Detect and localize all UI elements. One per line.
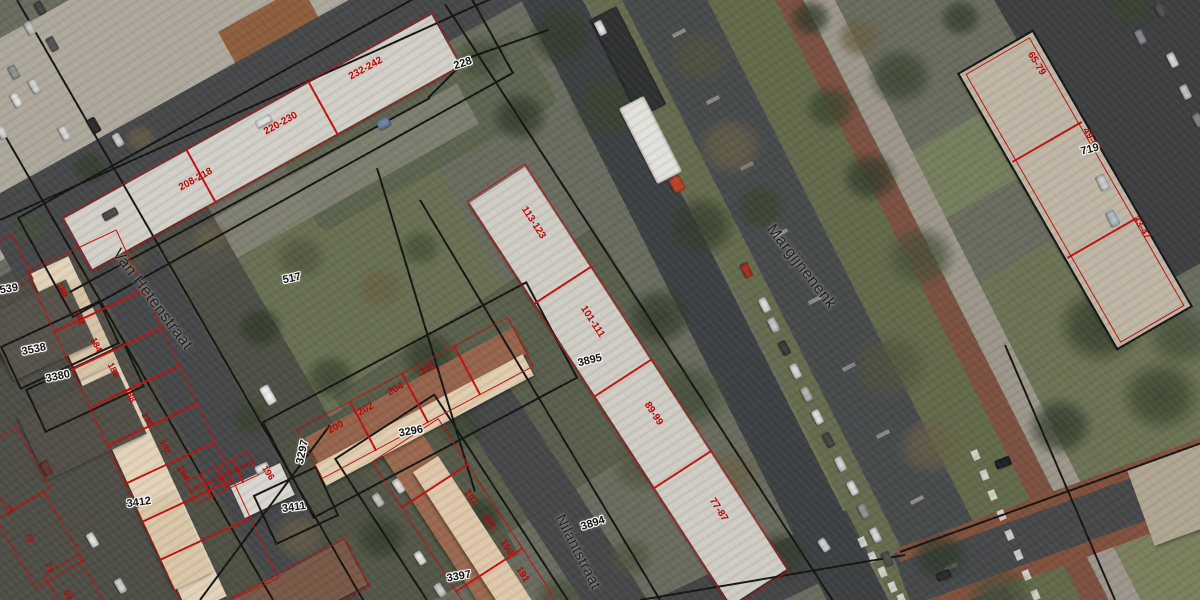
tree	[1118, 358, 1200, 435]
map-canvas[interactable]: 208-218220-230232-242113-123101-11189-99…	[0, 0, 1200, 600]
tree	[355, 265, 405, 310]
tree	[1025, 395, 1095, 458]
tree	[803, 83, 858, 133]
tree	[668, 28, 733, 87]
tree	[835, 15, 885, 60]
tree	[605, 535, 655, 580]
tree	[663, 193, 738, 261]
tree	[883, 223, 958, 291]
tree	[788, 0, 833, 38]
tree	[895, 415, 965, 478]
tree	[525, 5, 595, 68]
tree	[840, 150, 900, 204]
tree	[850, 330, 930, 402]
tree	[695, 115, 765, 178]
tree	[235, 305, 285, 350]
tree	[938, 0, 983, 38]
